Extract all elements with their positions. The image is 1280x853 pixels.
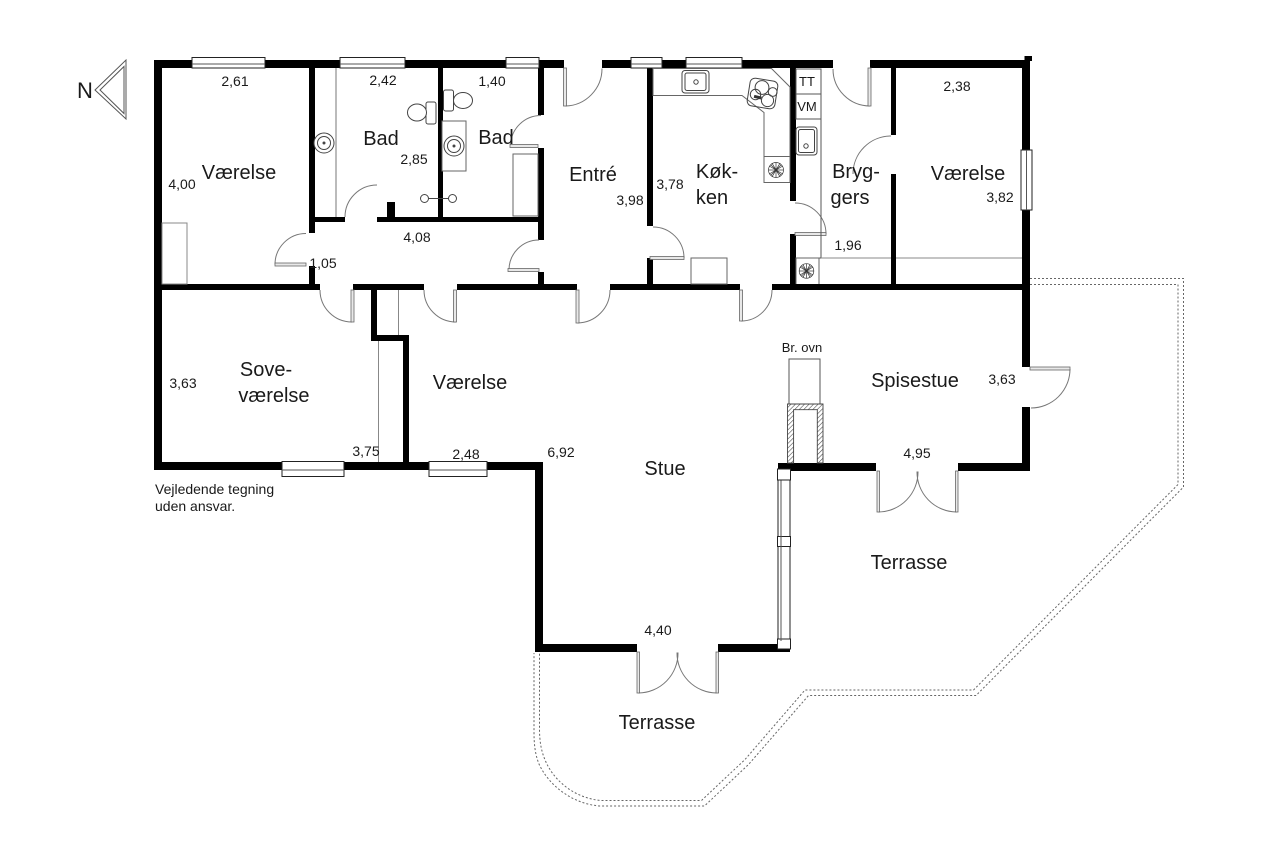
svg-text:4,95: 4,95 [903,445,930,461]
svg-text:2,85: 2,85 [400,151,427,167]
svg-text:4,40: 4,40 [644,622,671,638]
svg-text:3,63: 3,63 [988,371,1015,387]
svg-text:Terrasse: Terrasse [619,712,696,734]
svg-text:1,96: 1,96 [834,237,861,253]
svg-text:Bryg-: Bryg- [832,161,880,183]
svg-text:3,98: 3,98 [616,192,643,208]
svg-text:Terrasse: Terrasse [871,552,948,574]
svg-text:Br. ovn: Br. ovn [782,340,822,355]
svg-text:Spisestue: Spisestue [871,370,959,392]
svg-text:VM: VM [797,99,817,114]
svg-text:1,40: 1,40 [478,73,505,89]
svg-text:Bad: Bad [363,128,399,150]
svg-text:ken: ken [696,187,728,209]
svg-text:Køk-: Køk- [696,161,738,183]
svg-text:TT: TT [799,74,815,89]
svg-text:3,75: 3,75 [352,443,379,459]
svg-text:4,08: 4,08 [403,229,430,245]
svg-text:1,05: 1,05 [309,255,336,271]
svg-text:3,82: 3,82 [986,189,1013,205]
svg-text:3,63: 3,63 [169,375,196,391]
svg-text:Værelse: Værelse [433,372,507,394]
svg-text:2,61: 2,61 [221,73,248,89]
svg-text:2,48: 2,48 [452,446,479,462]
svg-text:Stue: Stue [644,458,685,480]
svg-text:4,00: 4,00 [168,176,195,192]
svg-text:N: N [77,78,93,103]
svg-text:uden ansvar.: uden ansvar. [155,498,235,514]
svg-text:værelse: værelse [238,385,309,407]
svg-text:Entré: Entré [569,164,617,186]
svg-text:gers: gers [831,187,870,209]
svg-text:Værelse: Værelse [931,163,1005,185]
svg-text:6,92: 6,92 [547,444,574,460]
svg-text:Værelse: Værelse [202,162,276,184]
svg-text:Sove-: Sove- [240,359,292,381]
svg-text:Bad: Bad [478,127,514,149]
svg-text:Vejledende tegning: Vejledende tegning [155,481,274,497]
svg-text:3,78: 3,78 [656,176,683,192]
svg-text:2,38: 2,38 [943,78,970,94]
svg-text:2,42: 2,42 [369,72,396,88]
